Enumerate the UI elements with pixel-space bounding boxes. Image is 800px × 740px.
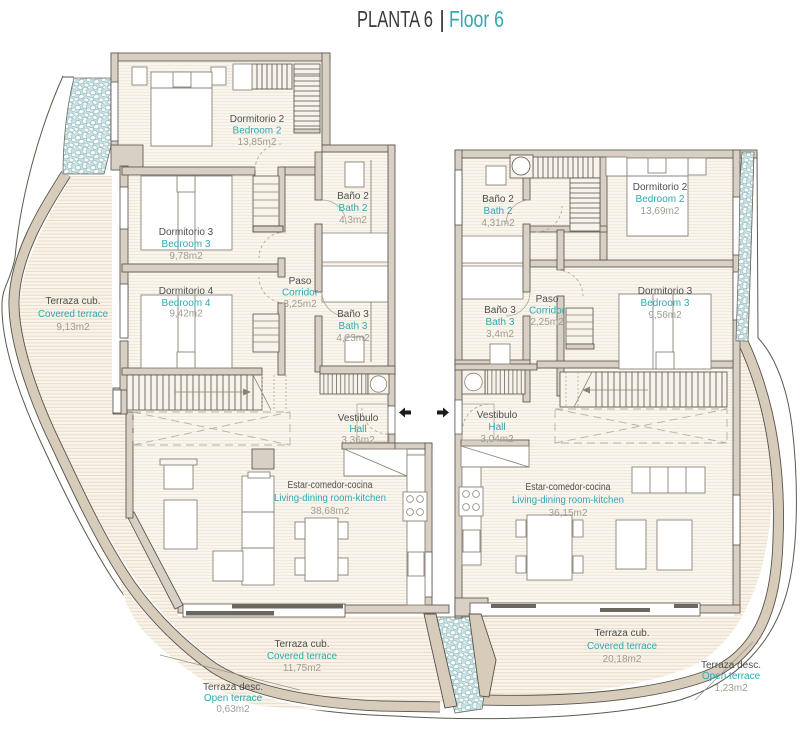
svg-text:Bath 2: Bath 2 (484, 206, 513, 217)
svg-text:Living-dining room-kitchen: Living-dining room-kitchen (512, 495, 624, 506)
svg-text:Paso: Paso (289, 276, 312, 287)
svg-text:Terraza desc.: Terraza desc. (203, 682, 263, 693)
svg-text:Terraza desc.: Terraza desc. (701, 660, 761, 671)
svg-text:Terraza cub.: Terraza cub. (45, 296, 100, 307)
svg-text:Corridor: Corridor (529, 306, 566, 317)
svg-text:Hall: Hall (488, 422, 505, 433)
svg-text:Baño 2: Baño 2 (482, 194, 514, 205)
svg-text:9,13m2: 9,13m2 (56, 322, 90, 333)
svg-text:3,25m2: 3,25m2 (283, 299, 317, 310)
svg-text:Dormitorio 2: Dormitorio 2 (633, 182, 688, 193)
svg-text:Open terrace: Open terrace (204, 693, 263, 704)
svg-text:Bedroom 3: Bedroom 3 (641, 298, 690, 309)
svg-text:20,18m2: 20,18m2 (603, 654, 642, 665)
svg-text:Vestibulo: Vestibulo (338, 413, 379, 424)
svg-text:3,04m2: 3,04m2 (480, 434, 514, 445)
svg-text:2,25m2: 2,25m2 (530, 317, 564, 328)
svg-text:4,3m2: 4,3m2 (339, 215, 367, 226)
svg-text:Covered terrace: Covered terrace (267, 651, 337, 662)
svg-text:36,15m2: 36,15m2 (549, 508, 588, 519)
svg-text:Baño 2: Baño 2 (337, 191, 369, 202)
svg-text:Bedroom 2: Bedroom 2 (636, 194, 685, 205)
svg-text:Dormitorio 4: Dormitorio 4 (159, 286, 214, 297)
svg-text:|: | (439, 6, 445, 32)
svg-text:13,69m2: 13,69m2 (641, 206, 680, 217)
svg-text:4,23m2: 4,23m2 (336, 333, 370, 344)
svg-text:Paso: Paso (536, 294, 559, 305)
svg-text:Corridor: Corridor (282, 288, 319, 299)
svg-text:Bedroom 3: Bedroom 3 (162, 239, 211, 250)
svg-text:Baño 3: Baño 3 (337, 309, 369, 320)
svg-text:Estar-comedor-cocina: Estar-comedor-cocina (526, 482, 611, 493)
svg-text:4,31m2: 4,31m2 (481, 218, 515, 229)
svg-text:3,36m2: 3,36m2 (341, 435, 375, 446)
svg-text:9,56m2: 9,56m2 (648, 310, 682, 321)
svg-text:11,75m2: 11,75m2 (283, 663, 322, 674)
svg-text:Dormitorio 3: Dormitorio 3 (159, 227, 214, 238)
svg-text:PLANTA 6: PLANTA 6 (357, 6, 433, 32)
svg-text:Covered terrace: Covered terrace (38, 309, 108, 320)
svg-text:Dormitorio 3: Dormitorio 3 (638, 286, 693, 297)
svg-text:Covered terrace: Covered terrace (587, 641, 657, 652)
svg-text:Open terrace: Open terrace (702, 671, 761, 682)
svg-text:Bedroom 4: Bedroom 4 (162, 298, 211, 309)
svg-text:9,42m2: 9,42m2 (169, 309, 203, 320)
svg-text:Terraza cub.: Terraza cub. (274, 639, 329, 650)
svg-text:13,85m2: 13,85m2 (238, 137, 277, 148)
svg-text:Living-dining room-kitchen: Living-dining room-kitchen (274, 493, 386, 504)
svg-text:Bath 3: Bath 3 (339, 321, 368, 332)
svg-text:3,4m2: 3,4m2 (486, 329, 514, 340)
svg-text:Bath 3: Bath 3 (486, 317, 515, 328)
svg-text:Hall: Hall (349, 424, 366, 435)
svg-text:9,78m2: 9,78m2 (169, 251, 203, 262)
svg-text:Terraza cub.: Terraza cub. (594, 628, 649, 639)
svg-text:Baño 3: Baño 3 (484, 305, 516, 316)
svg-text:0,63m2: 0,63m2 (216, 704, 250, 715)
svg-text:38,68m2: 38,68m2 (311, 506, 350, 517)
svg-text:Floor 6: Floor 6 (449, 6, 504, 32)
svg-text:Bedroom 2: Bedroom 2 (233, 126, 282, 137)
svg-text:Vestibulo: Vestibulo (477, 410, 518, 421)
svg-text:Dormitorio 2: Dormitorio 2 (230, 114, 285, 125)
svg-text:Estar-comedor-cocina: Estar-comedor-cocina (288, 480, 373, 491)
svg-text:1,23m2: 1,23m2 (714, 683, 748, 694)
svg-text:Bath 2: Bath 2 (339, 203, 368, 214)
